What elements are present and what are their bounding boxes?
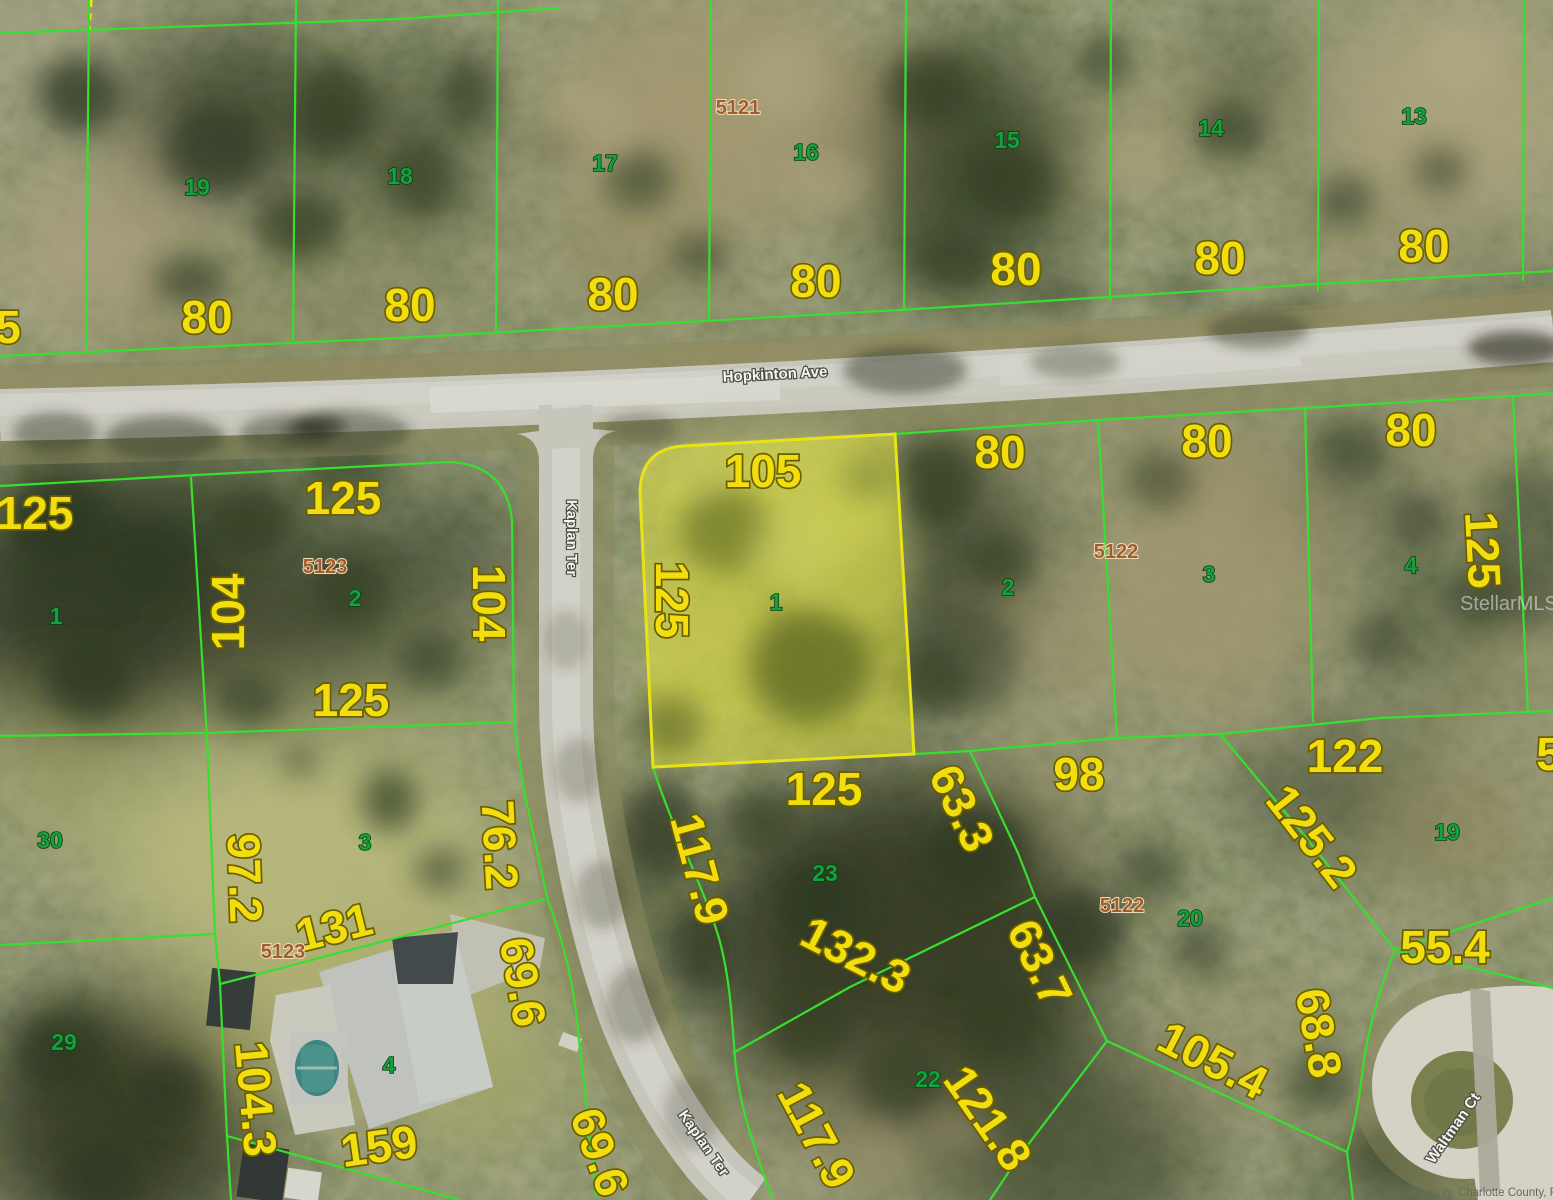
svg-text:30: 30 — [37, 827, 63, 853]
svg-text:19: 19 — [1434, 819, 1460, 845]
svg-text:80: 80 — [1385, 404, 1436, 456]
svg-text:16: 16 — [793, 139, 819, 165]
svg-text:125: 125 — [313, 674, 390, 726]
svg-text:1: 1 — [50, 603, 63, 629]
svg-text:104: 104 — [202, 573, 254, 650]
svg-text:18: 18 — [387, 163, 413, 189]
svg-text:20: 20 — [1177, 905, 1203, 931]
svg-text:80: 80 — [990, 243, 1041, 295]
svg-text:5122: 5122 — [1100, 895, 1145, 917]
svg-text:5122: 5122 — [1094, 541, 1139, 563]
svg-text:80: 80 — [1398, 220, 1449, 272]
svg-text:122: 122 — [1307, 730, 1384, 782]
svg-text:StellarMLS: StellarMLS — [1460, 593, 1553, 615]
svg-text:97.2: 97.2 — [217, 832, 272, 923]
svg-text:4: 4 — [383, 1052, 396, 1078]
svg-text:Charlotte County, Charlotte Co: Charlotte County, Charlotte County, FL — [1366, 1187, 1553, 1199]
svg-text:5123: 5123 — [261, 941, 306, 963]
svg-text:3: 3 — [1203, 561, 1216, 587]
svg-text:2: 2 — [1002, 574, 1015, 600]
svg-text:3: 3 — [359, 829, 372, 855]
svg-text:23: 23 — [812, 860, 838, 886]
svg-text:80: 80 — [1181, 415, 1232, 467]
svg-text:5123: 5123 — [303, 556, 348, 578]
svg-text:125: 125 — [786, 763, 863, 815]
svg-text:76.2: 76.2 — [472, 799, 529, 891]
svg-text:80: 80 — [384, 279, 435, 331]
svg-text:4: 4 — [1405, 552, 1418, 578]
svg-text:125: 125 — [1455, 510, 1511, 589]
svg-text:125: 125 — [305, 472, 382, 524]
svg-text:80: 80 — [1194, 232, 1245, 284]
svg-text:5121: 5121 — [716, 97, 761, 119]
svg-text:159: 159 — [337, 1115, 420, 1177]
svg-text:80: 80 — [181, 291, 232, 343]
svg-text:125: 125 — [646, 562, 698, 639]
svg-text:13: 13 — [1401, 103, 1427, 129]
svg-text:104.3: 104.3 — [225, 1039, 287, 1158]
svg-text:29: 29 — [51, 1029, 77, 1055]
svg-text:14: 14 — [1198, 115, 1224, 141]
svg-text:19: 19 — [184, 174, 210, 200]
svg-text:55.4: 55.4 — [1400, 921, 1490, 973]
svg-text:105: 105 — [725, 445, 802, 497]
svg-text:Kaplan Ter: Kaplan Ter — [563, 500, 580, 577]
svg-text:80: 80 — [790, 255, 841, 307]
svg-text:5: 5 — [1536, 728, 1553, 780]
svg-text:17: 17 — [592, 150, 618, 176]
svg-text:15: 15 — [994, 127, 1020, 153]
svg-text:5: 5 — [0, 301, 21, 353]
svg-text:22: 22 — [915, 1066, 941, 1092]
svg-text:80: 80 — [974, 426, 1025, 478]
svg-text:98: 98 — [1053, 748, 1104, 800]
svg-text:125: 125 — [0, 487, 73, 539]
svg-text:2: 2 — [349, 585, 362, 611]
svg-text:104: 104 — [463, 565, 515, 642]
svg-text:1: 1 — [770, 589, 783, 615]
svg-text:80: 80 — [587, 268, 638, 320]
